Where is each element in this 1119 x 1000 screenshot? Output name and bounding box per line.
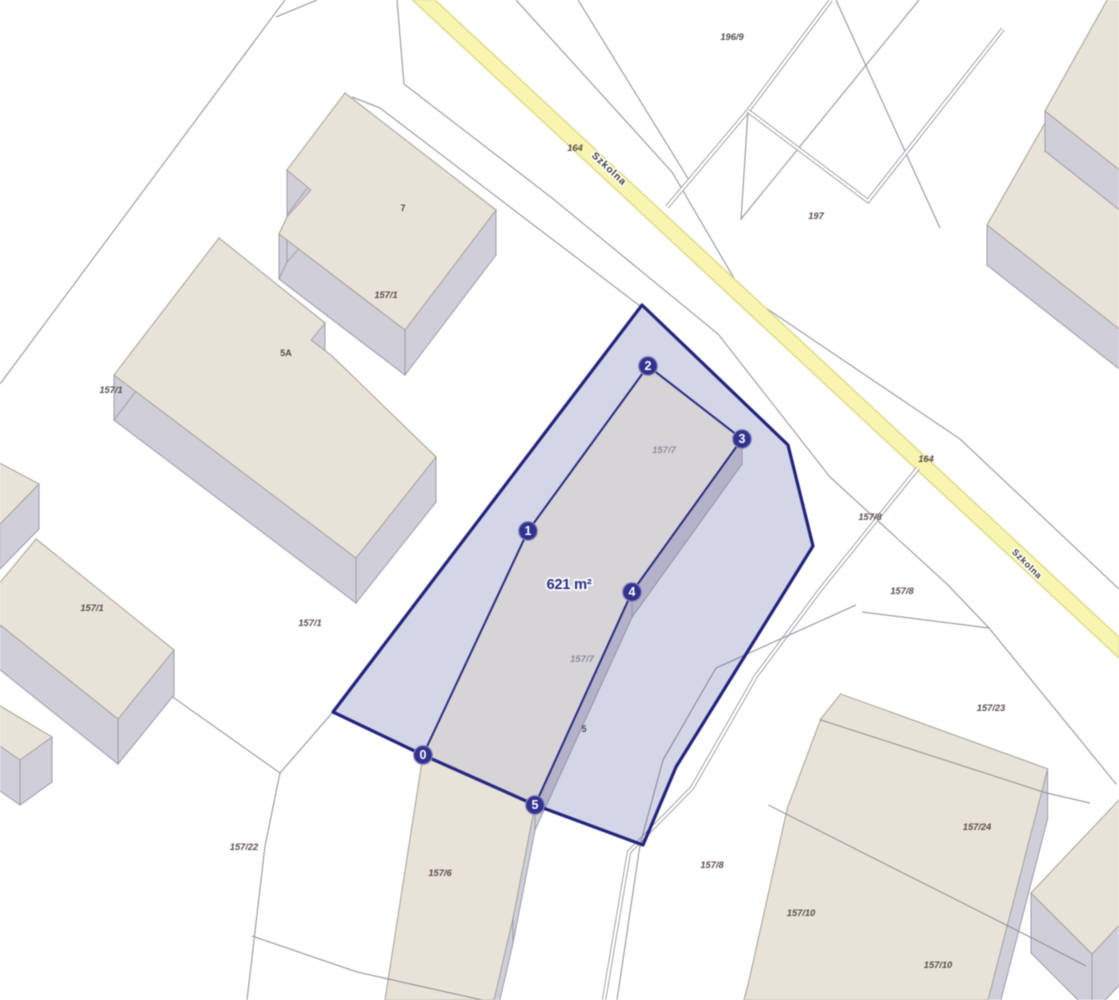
svg-text:157/10: 157/10 (924, 960, 953, 970)
svg-text:0: 0 (420, 748, 427, 762)
svg-text:5: 5 (532, 798, 539, 812)
svg-text:157/7: 157/7 (570, 654, 594, 665)
svg-text:197: 197 (808, 211, 824, 221)
svg-text:157/23: 157/23 (977, 703, 1006, 713)
svg-text:4: 4 (629, 585, 636, 599)
svg-text:5: 5 (581, 724, 586, 734)
svg-text:621 m²: 621 m² (546, 577, 591, 593)
svg-text:157/1: 157/1 (374, 290, 397, 300)
svg-text:3: 3 (739, 432, 746, 446)
svg-text:5A: 5A (280, 348, 292, 358)
svg-text:157/1: 157/1 (99, 385, 122, 395)
svg-text:7: 7 (400, 203, 405, 213)
svg-text:157/1: 157/1 (298, 618, 321, 628)
svg-text:196/9: 196/9 (720, 32, 744, 42)
svg-text:164: 164 (918, 454, 934, 464)
svg-text:157/8: 157/8 (858, 512, 882, 522)
svg-text:157/24: 157/24 (963, 822, 992, 832)
svg-text:2: 2 (645, 359, 652, 373)
svg-text:157/8: 157/8 (890, 586, 914, 596)
svg-text:157/8: 157/8 (700, 860, 724, 870)
svg-text:164: 164 (567, 143, 583, 153)
svg-text:1: 1 (525, 524, 532, 538)
svg-text:157/10: 157/10 (787, 908, 816, 918)
svg-text:157/22: 157/22 (230, 842, 259, 852)
svg-text:157/1: 157/1 (80, 603, 103, 613)
svg-text:157/7: 157/7 (652, 445, 676, 456)
svg-text:157/6: 157/6 (428, 868, 452, 878)
